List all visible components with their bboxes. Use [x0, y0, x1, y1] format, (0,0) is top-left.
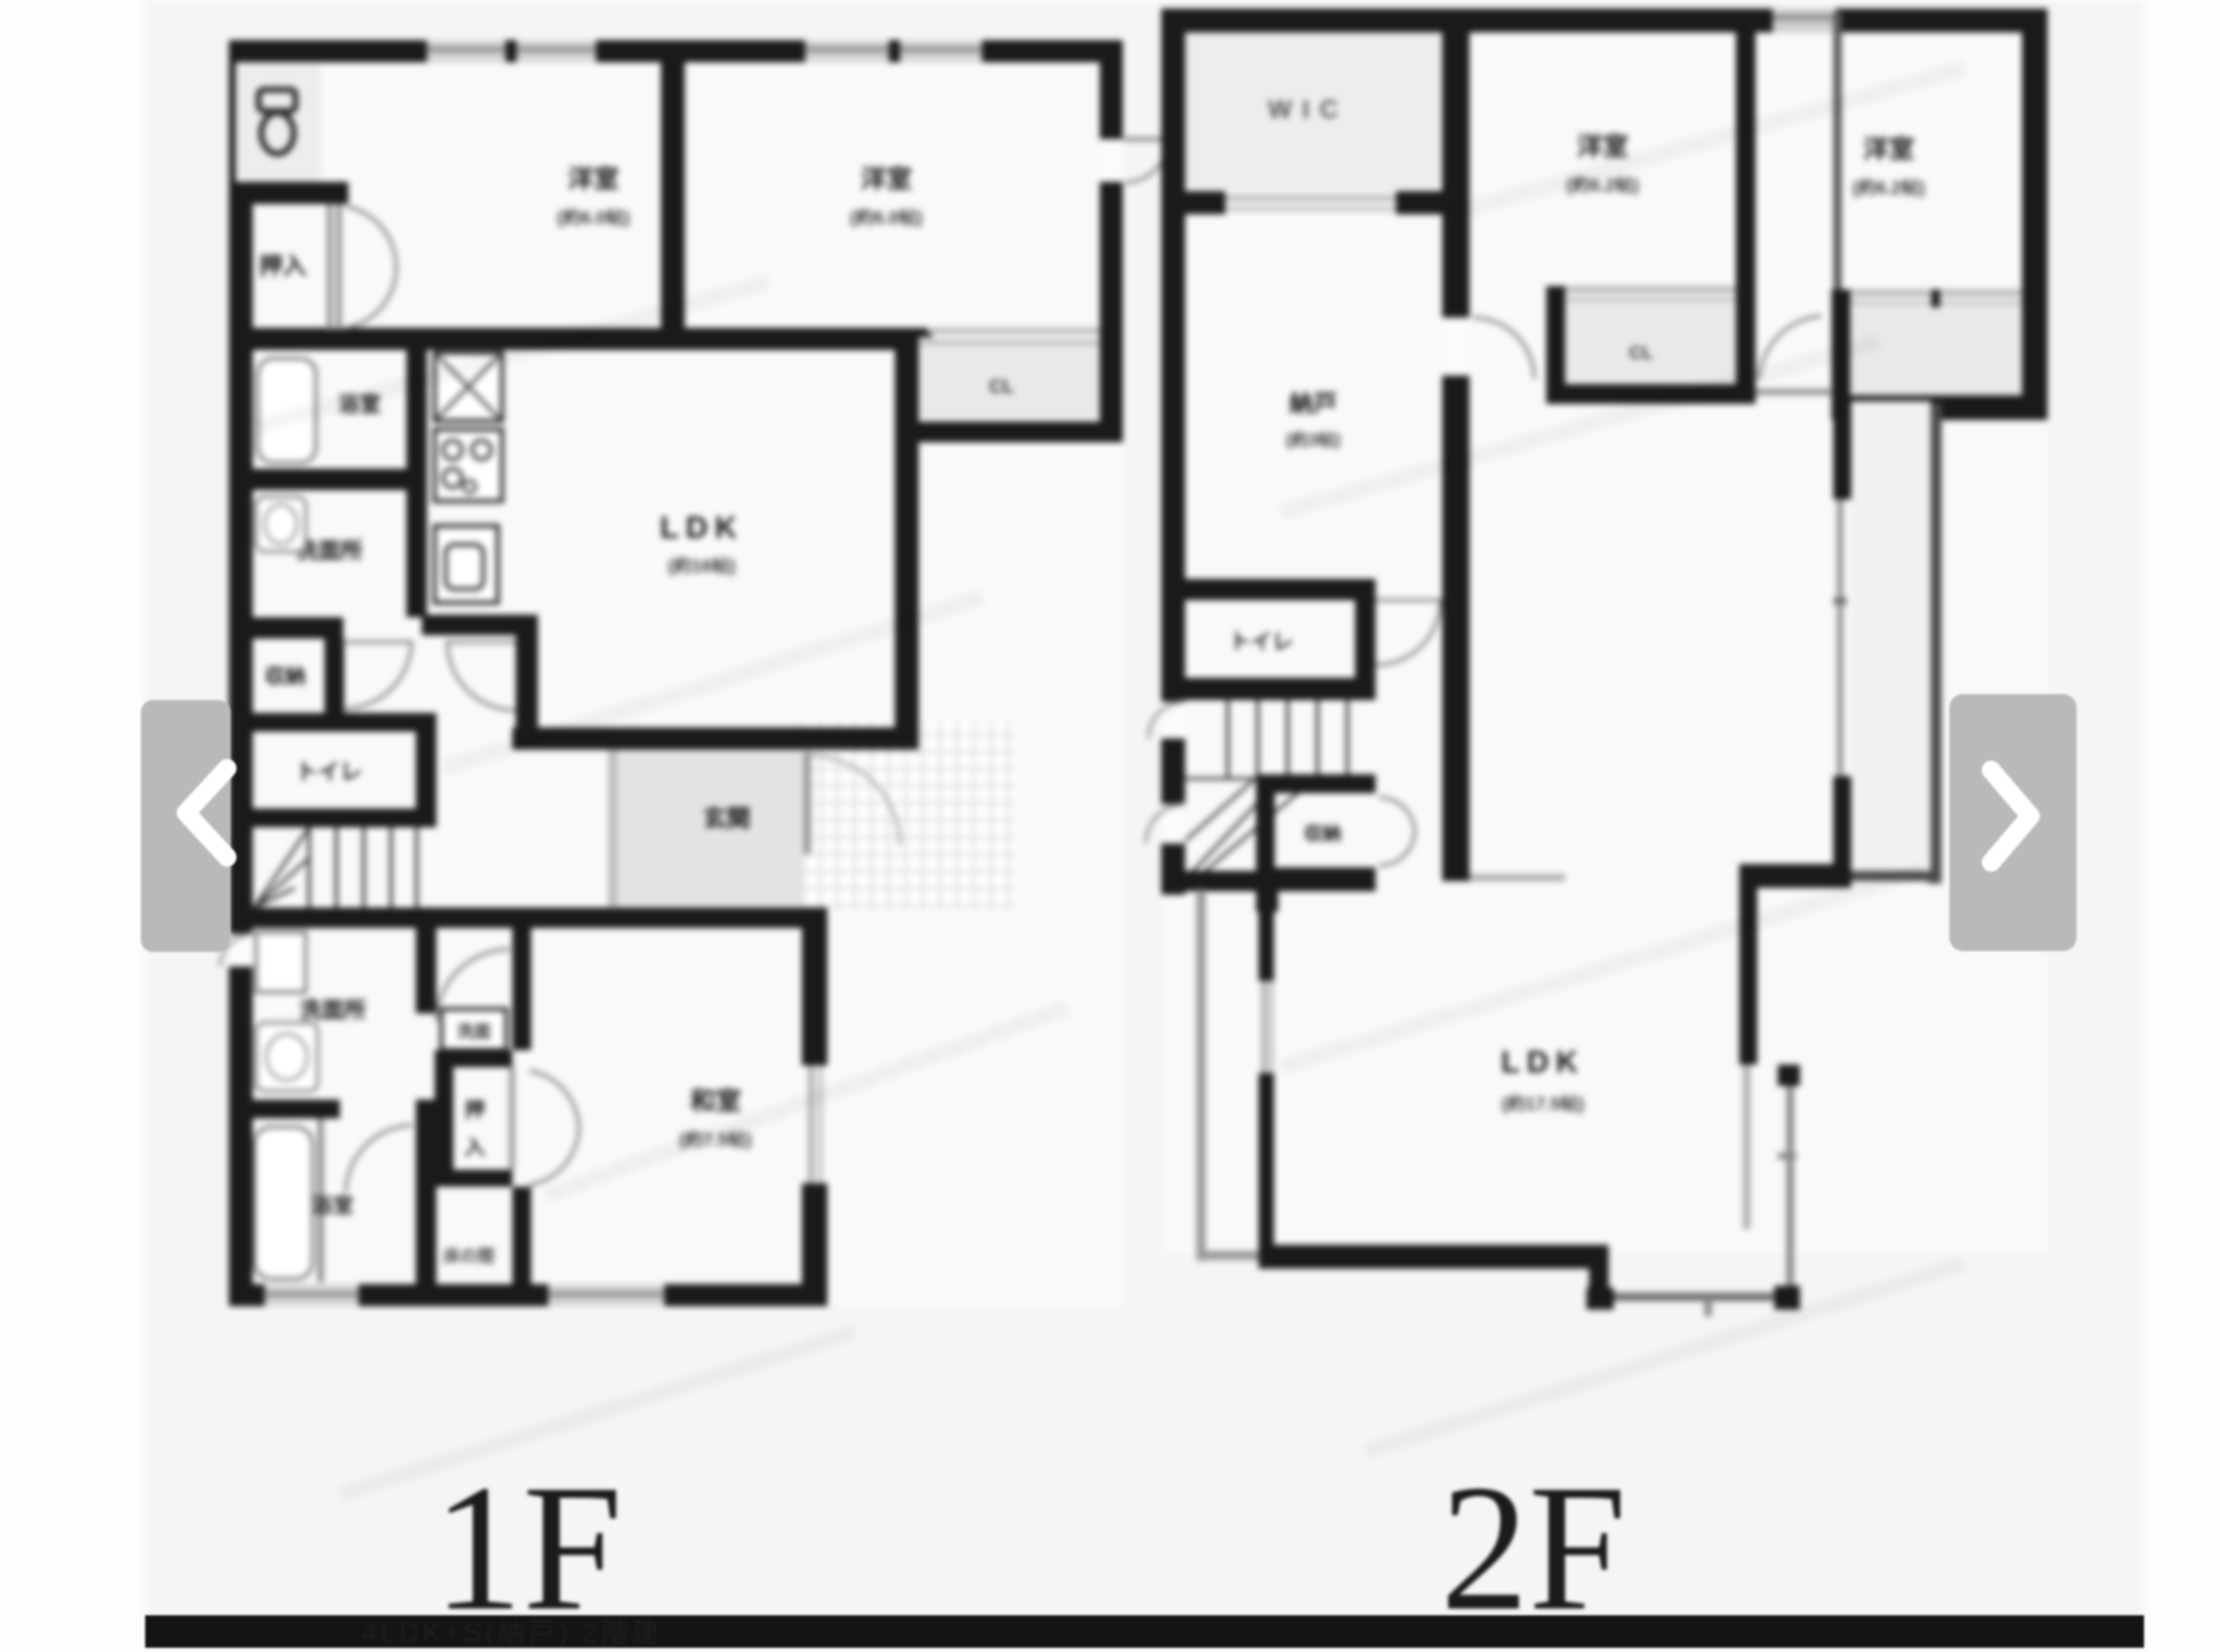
svg-text:4LDK+S(納戸) 2階建: 4LDK+S(納戸) 2階建 [362, 1617, 663, 1648]
